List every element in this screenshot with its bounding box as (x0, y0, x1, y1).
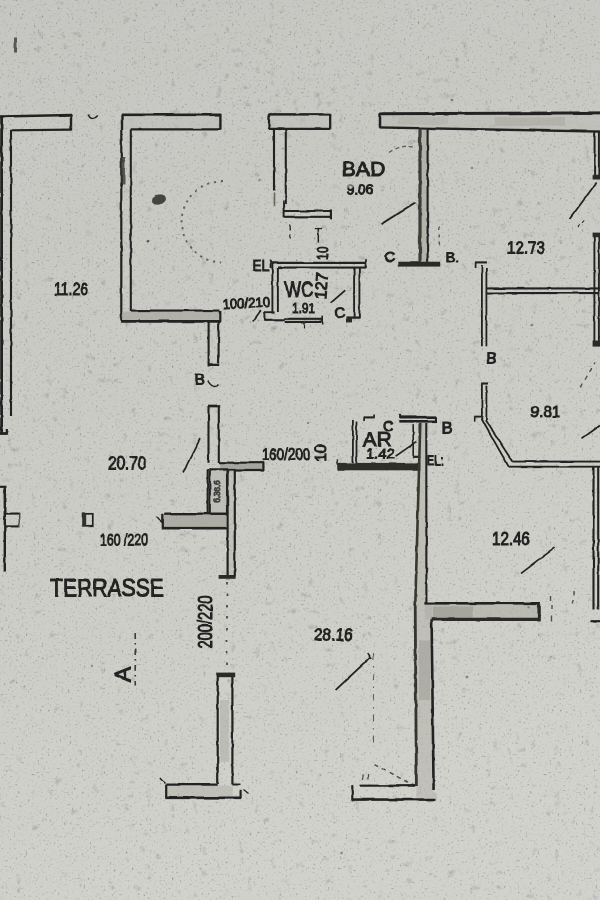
svg-text:9.81: 9.81 (531, 404, 561, 421)
svg-text:1.42: 1.42 (366, 446, 395, 462)
svg-text:EL: EL (253, 258, 270, 275)
svg-text:10: 10 (313, 444, 330, 461)
svg-text:6.36.6: 6.36.6 (213, 480, 222, 503)
svg-text:BAD: BAD (342, 158, 386, 181)
svg-text:28.16: 28.16 (314, 625, 353, 645)
svg-text:100/210: 100/210 (222, 294, 270, 312)
svg-text:12.73: 12.73 (507, 238, 545, 258)
svg-text:C: C (335, 306, 345, 322)
svg-text:20.70: 20.70 (108, 454, 146, 474)
svg-text:160/200: 160/200 (262, 446, 310, 464)
svg-text:B: B (442, 420, 453, 438)
svg-text:11.26: 11.26 (54, 280, 88, 300)
svg-text:TERRASSE: TERRASSE (50, 575, 164, 603)
svg-text:A: A (110, 666, 136, 682)
svg-text:200/220: 200/220 (195, 596, 217, 649)
svg-text:C: C (385, 249, 396, 266)
svg-text:B: B (195, 372, 205, 389)
svg-text:EL:: EL: (427, 454, 444, 470)
svg-text:160 /220: 160 /220 (100, 531, 148, 550)
svg-text:12.46: 12.46 (492, 529, 530, 549)
svg-text:B: B (487, 351, 497, 368)
svg-text:1.91: 1.91 (292, 301, 315, 317)
svg-text:WC: WC (285, 277, 314, 302)
svg-text:B.: B. (446, 250, 460, 267)
svg-text:127: 127 (312, 272, 332, 300)
svg-text:10: 10 (315, 247, 332, 260)
